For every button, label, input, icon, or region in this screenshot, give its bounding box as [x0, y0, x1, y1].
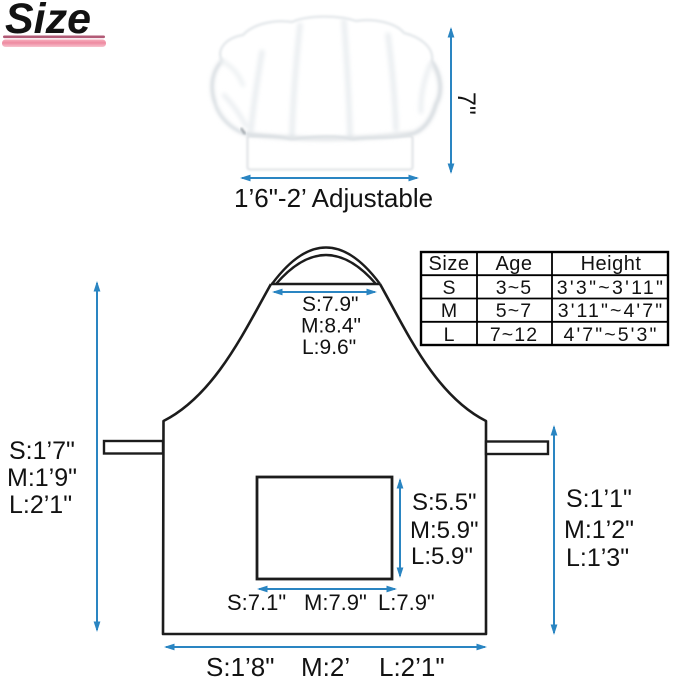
svg-text:S: S [442, 277, 455, 299]
svg-text:M:5.9": M:5.9" [410, 517, 479, 544]
svg-text:M:8.4": M:8.4" [301, 315, 361, 338]
svg-text:Size: Size [429, 253, 470, 275]
svg-text:L: L [444, 324, 455, 346]
svg-text:1’6"-2’ Adjustable: 1’6"-2’ Adjustable [234, 183, 433, 213]
svg-text:S:7.1": S:7.1" [227, 590, 286, 615]
svg-text:M:7.9": M:7.9" [304, 590, 367, 615]
svg-text:M:2’: M:2’ [301, 652, 350, 678]
svg-text:L:5.9": L:5.9" [411, 543, 473, 570]
svg-text:L:2’1": L:2’1" [9, 491, 72, 519]
svg-text:Height: Height [581, 253, 642, 275]
svg-text:7~12: 7~12 [490, 324, 538, 346]
svg-text:S:1’7": S:1’7" [9, 437, 75, 465]
svg-text:7": 7" [452, 92, 480, 115]
svg-text:Age: Age [495, 253, 532, 275]
svg-text:5~7: 5~7 [496, 300, 532, 322]
svg-text:L:1’3": L:1’3" [566, 544, 629, 572]
svg-text:L:7.9": L:7.9" [378, 590, 435, 615]
svg-text:3'11"~4'7": 3'11"~4'7" [558, 300, 664, 322]
svg-text:M:1’2": M:1’2" [564, 516, 634, 544]
svg-text:3'3"~3'11": 3'3"~3'11" [557, 277, 665, 299]
svg-text:4'7"~5'3": 4'7"~5'3" [564, 324, 659, 346]
svg-text:M:1’9": M:1’9" [7, 464, 77, 492]
svg-text:S:7.9": S:7.9" [302, 293, 359, 316]
svg-text:S:5.5": S:5.5" [412, 489, 477, 516]
svg-text:S:1’1": S:1’1" [566, 485, 632, 513]
svg-text:S:1’8": S:1’8" [206, 652, 275, 678]
svg-text:L:2’1": L:2’1" [379, 652, 445, 678]
svg-text:3~5: 3~5 [496, 277, 532, 299]
svg-text:M: M [441, 300, 457, 322]
svg-text:L:9.6": L:9.6" [302, 336, 356, 359]
